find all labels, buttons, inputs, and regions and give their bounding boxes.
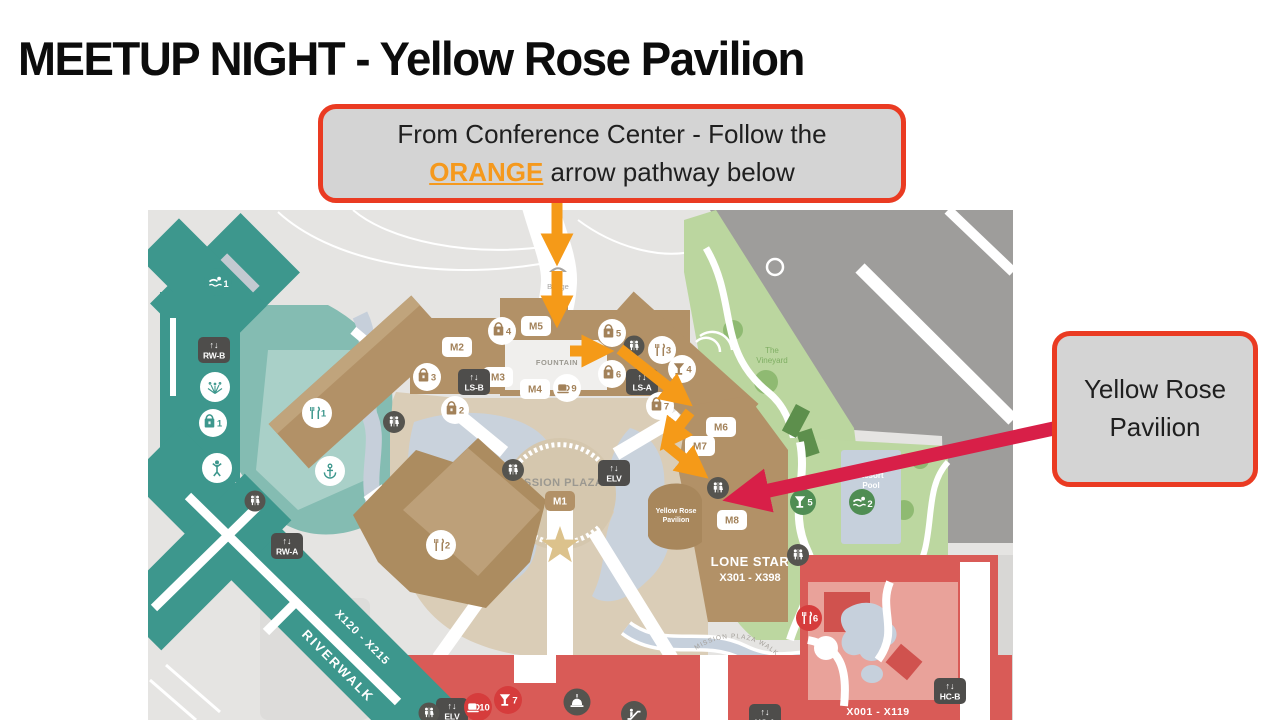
svg-text:↑↓: ↑↓ [761,707,770,717]
pool-icon: 2 [849,489,875,515]
svg-text:M3: M3 [491,373,505,384]
slide-title: MEETUP NIGHT - Yellow Rose Pavilion [18,31,1007,86]
lone-star-label: LONE STAR [711,554,790,569]
svg-text:1: 1 [321,409,327,420]
svg-text:7: 7 [664,402,669,413]
badge-m1: M1 [545,491,575,511]
badge-m2: M2 [442,337,472,357]
shop-icon: 4 [488,317,516,345]
elevator-badge-rw-b: ↑↓RW-B [198,337,230,363]
svg-text:↑↓: ↑↓ [610,463,619,473]
route-callout-line1: From Conference Center - Follow the [323,116,901,154]
fountain-show-icon [200,372,230,402]
restaurant-icon: 2 [426,530,456,560]
restroom-icon [624,336,645,357]
restroom-icon [383,411,405,433]
svg-text:↑↓: ↑↓ [470,372,479,382]
svg-text:1: 1 [217,419,223,430]
elevator-badge-ls-a: ↑↓LS-A [626,369,658,395]
restroom-icon [245,491,266,512]
svg-text:3: 3 [666,346,671,357]
orange-highlight: ORANGE [429,157,543,187]
svg-text:2: 2 [867,499,872,510]
elevator-badge-rw-a: ↑↓RW-A [271,533,303,559]
svg-text:7: 7 [512,696,517,707]
svg-text:M7: M7 [693,442,707,453]
svg-text:↑↓: ↑↓ [946,681,955,691]
cocktail-icon: 5 [790,489,816,515]
yellow-rose-label-2: Pavilion [663,517,690,524]
elevator-badge-hc-a: ↑↓HC-A [749,704,781,720]
yellow-rose-label: Yellow Rose [656,508,697,515]
svg-text:RW-A: RW-A [276,547,298,557]
badge-m7: M7 [685,436,715,456]
svg-text:M6: M6 [714,423,728,434]
shop-icon: 3 [413,363,441,391]
shop-icon: 7 [646,392,674,420]
badge-m5: M5 [521,316,551,336]
restaurant-icon: 1 [302,398,332,428]
cocktail-icon: 7 [494,686,522,714]
lone-star-rooms-label: X301 - X398 [719,572,780,584]
svg-text:ELV: ELV [444,712,460,720]
svg-text:HC-B: HC-B [940,692,961,702]
svg-text:2: 2 [459,406,464,417]
resort-map: Bridge The Vineyard Resort Pool [148,210,1013,720]
restroom-icon [502,459,524,481]
badge-m4: M4 [520,379,550,399]
svg-text:4: 4 [506,327,512,338]
svg-text:3: 3 [431,373,436,384]
elevator-badge-hc-b: ↑↓HC-B [934,678,966,704]
svg-text:5: 5 [807,498,813,509]
shop-icon: 1 [199,409,227,437]
resort-pool-label-2: Pool [862,481,879,490]
svg-text:5: 5 [616,329,622,340]
bar-icon [202,453,232,483]
svg-text:2: 2 [445,541,450,552]
svg-text:LS-B: LS-B [464,383,483,393]
elevator-badge-ls-b: ↑↓LS-B [458,369,490,395]
pool-icon: 1 [204,268,232,296]
shop-icon: 6 [598,360,626,388]
svg-text:↑↓: ↑↓ [638,372,647,382]
restroom-icon [707,477,729,499]
svg-text:10: 10 [479,703,490,714]
svg-text:9: 9 [571,384,576,395]
coffee-icon: 10 [464,693,492,720]
svg-text:M8: M8 [725,516,739,527]
bridge-label: Bridge [547,282,569,291]
svg-text:↑↓: ↑↓ [210,340,219,350]
restroom-icon [787,544,809,566]
vineyard-label-2: Vineyard [756,356,787,365]
chapel-icon [564,689,591,716]
badge-m6: M6 [706,417,736,437]
svg-text:4: 4 [686,365,692,376]
restaurant-icon: 6 [796,605,822,631]
svg-text:↑↓: ↑↓ [448,701,457,711]
svg-text:M4: M4 [528,385,542,396]
route-callout-line2: ORANGE arrow pathway below [323,154,901,192]
vineyard-label: The [765,346,779,355]
svg-text:M2: M2 [450,343,464,354]
svg-text:M5: M5 [529,322,543,333]
destination-callout-label: Yellow Rose Pavilion [1075,371,1235,446]
svg-text:6: 6 [616,370,621,381]
hc-rooms-label: X001 - X119 [846,706,909,718]
elevator-badge-elv-plaza: ↑↓ELV [598,460,630,486]
svg-text:6: 6 [813,614,818,625]
elevator-badge-elv-south: ↑↓ELV [436,698,468,720]
svg-text:RW-B: RW-B [203,351,225,361]
shop-icon: 5 [598,319,626,347]
shop-icon: 2 [441,396,469,424]
svg-text:LS-A: LS-A [632,383,651,393]
route-callout: From Conference Center - Follow the ORAN… [318,104,906,203]
svg-text:M1: M1 [553,497,567,508]
cocktail-icon: 4 [668,355,696,383]
fountain-label: FOUNTAIN [536,358,578,367]
coffee-icon: 9 [553,374,581,402]
svg-text:ELV: ELV [606,474,622,484]
anchor-icon [315,456,345,486]
badge-m8: M8 [717,510,747,530]
slide: MEETUP NIGHT - Yellow Rose Pavilion [0,0,1280,720]
resort-pool-label: Resort [858,471,884,480]
destination-callout: Yellow Rose Pavilion [1052,331,1258,487]
svg-text:1: 1 [223,279,229,290]
svg-text:↑↓: ↑↓ [283,536,292,546]
